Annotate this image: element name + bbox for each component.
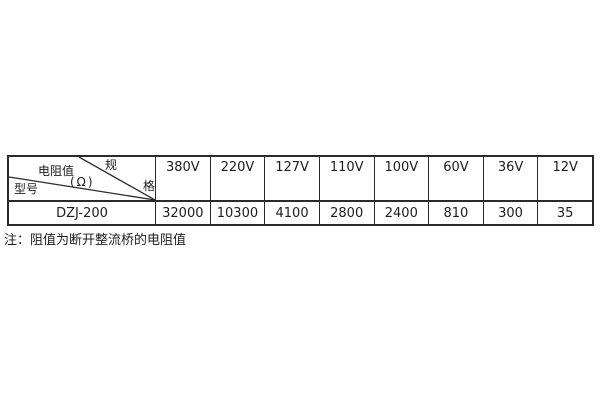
spec-label-char-top: 规 <box>105 159 117 172</box>
value-cell-127v: 4100 <box>264 202 319 224</box>
resistance-label: 电阻值 <box>38 165 74 178</box>
column-header-127v: 127V <box>264 157 319 200</box>
table-data-row: DZJ-200 32000 10300 4100 2800 2400 810 3… <box>9 200 592 224</box>
table-header-row: 规 格 电阻值 (Ω) 型号 380V 220V 127V 110V 100V … <box>9 157 592 200</box>
column-header-36v: 36V <box>483 157 538 200</box>
model-label: 型号 <box>14 183 38 196</box>
value-cell-380v: 32000 <box>155 202 210 224</box>
column-header-220v: 220V <box>210 157 265 200</box>
column-header-12v: 12V <box>537 157 592 200</box>
resistance-spec-table: 规 格 电阻值 (Ω) 型号 380V 220V 127V 110V 100V … <box>7 155 594 226</box>
value-cell-110v: 2800 <box>319 202 374 224</box>
page: 规 格 电阻值 (Ω) 型号 380V 220V 127V 110V 100V … <box>0 0 600 400</box>
column-header-110v: 110V <box>319 157 374 200</box>
spec-label-char-bottom: 格 <box>143 180 155 193</box>
column-header-60v: 60V <box>428 157 483 200</box>
column-header-100v: 100V <box>374 157 429 200</box>
value-cell-100v: 2400 <box>374 202 429 224</box>
value-cell-12v: 35 <box>537 202 592 224</box>
note-text: 注：阻值为断开整流桥的电阻值 <box>4 229 186 248</box>
value-cell-36v: 300 <box>483 202 538 224</box>
diagonal-header-cell: 规 格 电阻值 (Ω) 型号 <box>9 157 155 200</box>
value-cell-60v: 810 <box>428 202 483 224</box>
resistance-unit-label: (Ω) <box>70 176 95 189</box>
column-header-380v: 380V <box>155 157 210 200</box>
value-cell-220v: 10300 <box>210 202 265 224</box>
model-cell: DZJ-200 <box>9 202 155 224</box>
